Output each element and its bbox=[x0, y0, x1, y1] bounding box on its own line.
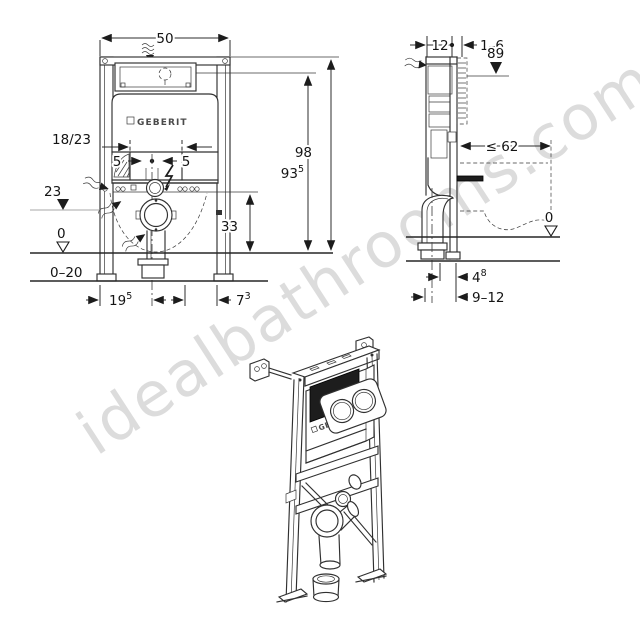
right-foot bbox=[214, 274, 233, 281]
datum-0-side: 0 bbox=[545, 210, 557, 236]
dim-frame-width: 50 bbox=[100, 31, 230, 56]
datum-23: 23 bbox=[30, 184, 100, 210]
flush-bend-port bbox=[147, 180, 164, 197]
dim-outlet-height-label: 23 bbox=[44, 184, 61, 200]
level-marker-filled-icon bbox=[490, 62, 502, 74]
cistern: GEBERIT bbox=[112, 94, 218, 183]
foot-right bbox=[356, 569, 386, 582]
dim-depth-label: 12 bbox=[431, 38, 448, 54]
dim-bottom-offsets: 195 73 bbox=[86, 285, 251, 309]
level-marker-filled-icon bbox=[57, 199, 69, 210]
dim-outlet-label: 48 bbox=[472, 268, 487, 286]
foot-left bbox=[277, 589, 307, 602]
dim-foot-left-label: 195 bbox=[109, 291, 132, 309]
water-supply-icon bbox=[405, 58, 428, 70]
outlet-collar bbox=[313, 574, 339, 602]
dim-bolt-right-label: 5 bbox=[182, 154, 191, 170]
dim-plate-height-side-label: 89 bbox=[487, 46, 504, 62]
pan-bracket bbox=[457, 176, 483, 181]
level-marker-open-icon bbox=[57, 242, 69, 252]
dim-fix-height-label: 33 bbox=[221, 219, 238, 235]
level-marker-open-icon bbox=[545, 226, 557, 236]
dim-frame-width-label: 50 bbox=[156, 31, 173, 47]
dim-pan-depth-label: ≤ 62 bbox=[486, 139, 519, 155]
datum-89: 89 bbox=[467, 46, 509, 76]
wall-section bbox=[457, 58, 467, 124]
dim-foot-right-label: 73 bbox=[236, 291, 251, 309]
dim-floor-level-side-label: 0 bbox=[545, 210, 554, 226]
rail-clip bbox=[216, 210, 222, 215]
dim-outlet-offsets: 48 9–12 bbox=[411, 263, 505, 306]
geberit-logo: GEBERIT bbox=[127, 117, 188, 128]
dim-plate-height: 935 bbox=[281, 76, 308, 250]
drain-outlet bbox=[136, 199, 176, 231]
dim-floor-level-label: 0 bbox=[57, 226, 66, 242]
wall-bracket-left bbox=[250, 359, 291, 381]
water-flow-arrow-icon bbox=[121, 230, 148, 253]
dim-bolt-left-label: 5 bbox=[113, 154, 122, 170]
left-foot bbox=[97, 274, 116, 281]
frame-foot bbox=[446, 252, 460, 259]
dim-adjust-range-label: 0–20 bbox=[50, 265, 83, 281]
geberit-logo-text: GEBERIT bbox=[137, 118, 188, 128]
pan-profile-dashed bbox=[457, 163, 548, 230]
dim-outlet-range-label: 9–12 bbox=[472, 290, 505, 306]
dim-plate-height-label: 935 bbox=[281, 164, 304, 182]
datum-0: 0 bbox=[57, 226, 69, 252]
drain-elbow bbox=[418, 195, 453, 259]
dim-total-height: 98 bbox=[295, 60, 331, 250]
inspection-window bbox=[115, 63, 196, 91]
dim-total-height-label: 98 bbox=[295, 145, 312, 161]
side-section-view: 12 1–6 bbox=[405, 36, 560, 306]
perspective-view: GEBERIT bbox=[250, 337, 388, 602]
dim-pan-depth: ≤ 62 bbox=[461, 139, 551, 236]
technical-drawing: 50 bbox=[0, 0, 640, 640]
front-elevation-view: 50 bbox=[30, 31, 339, 309]
dim-inlet-offset-label: 18/23 bbox=[52, 132, 91, 148]
